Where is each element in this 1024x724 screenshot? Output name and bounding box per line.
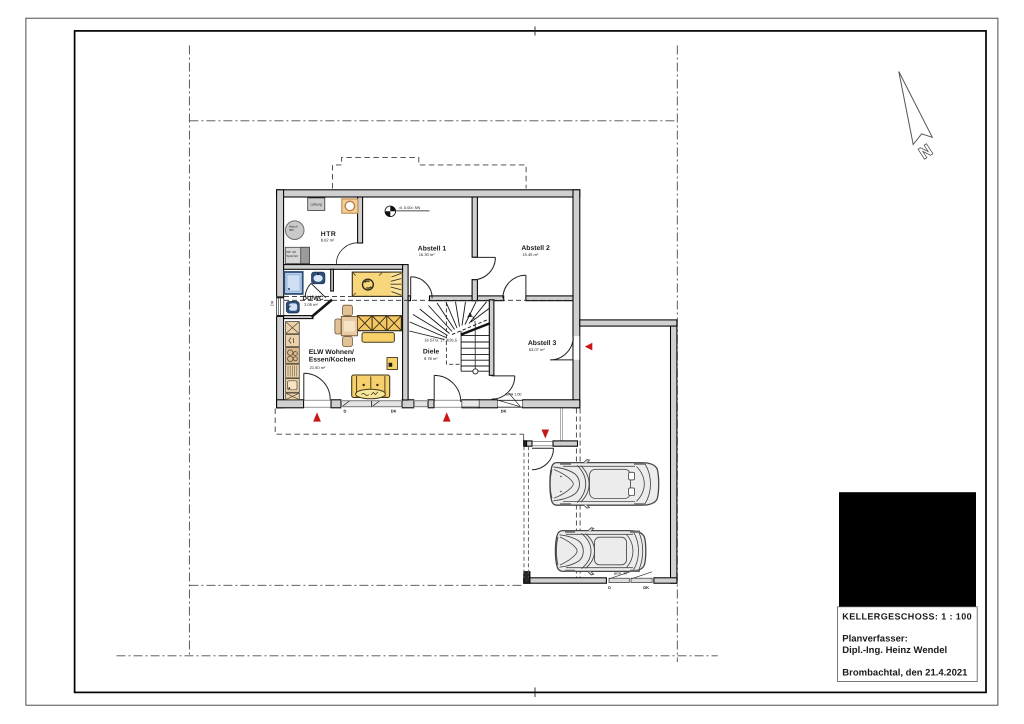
svg-text:DU/WC: DU/WC [303,295,324,302]
svg-text:O: O [608,585,611,590]
svg-text:16 STG. 17,4/26,5: 16 STG. 17,4/26,5 [424,337,457,342]
svg-text:Essen/Kochen: Essen/Kochen [309,357,356,364]
svg-text:9.78 m²: 9.78 m² [424,356,438,361]
svg-text:DK: DK [501,409,507,414]
svg-text:±l. 0.00= NN: ±l. 0.00= NN [399,206,420,210]
svg-text:Dipl.-Ing. Heinz Wendel: Dipl.-Ing. Heinz Wendel [842,645,947,656]
svg-text:2.05 m²: 2.05 m² [304,302,318,307]
svg-text:16.30 m²: 16.30 m² [419,252,435,257]
svg-text:63.07 m²: 63.07 m² [529,347,545,352]
svg-text:Planverfasser:: Planverfasser: [842,634,907,645]
svg-text:21.50 m²: 21.50 m² [310,365,326,370]
svg-text:D: D [344,408,347,413]
svg-text:DK: DK [270,300,275,306]
svg-text:300: 300 [289,228,294,232]
svg-text:ELW Wohnen/: ELW Wohnen/ [309,349,354,356]
svg-text:DK: DK [643,585,649,590]
svg-text:KELLERGESCHOSS: 1 : 100: KELLERGESCHOSS: 1 : 100 [842,611,972,621]
svg-text:BRH 1.00: BRH 1.00 [506,392,522,396]
svg-text:Lüftung: Lüftung [311,203,322,207]
svg-text:15.45 m²: 15.45 m² [522,252,538,257]
svg-text:Speicher: Speicher [286,254,298,258]
svg-text:Abstell 3: Abstell 3 [528,340,557,347]
svg-text:Diele: Diele [423,349,439,356]
svg-text:Brombachtal, den 21.4.2021: Brombachtal, den 21.4.2021 [842,667,968,678]
svg-text:8.62 m²: 8.62 m² [321,237,335,242]
svg-text:DK: DK [391,408,397,413]
svg-text:Abstell 2: Abstell 2 [521,245,550,252]
